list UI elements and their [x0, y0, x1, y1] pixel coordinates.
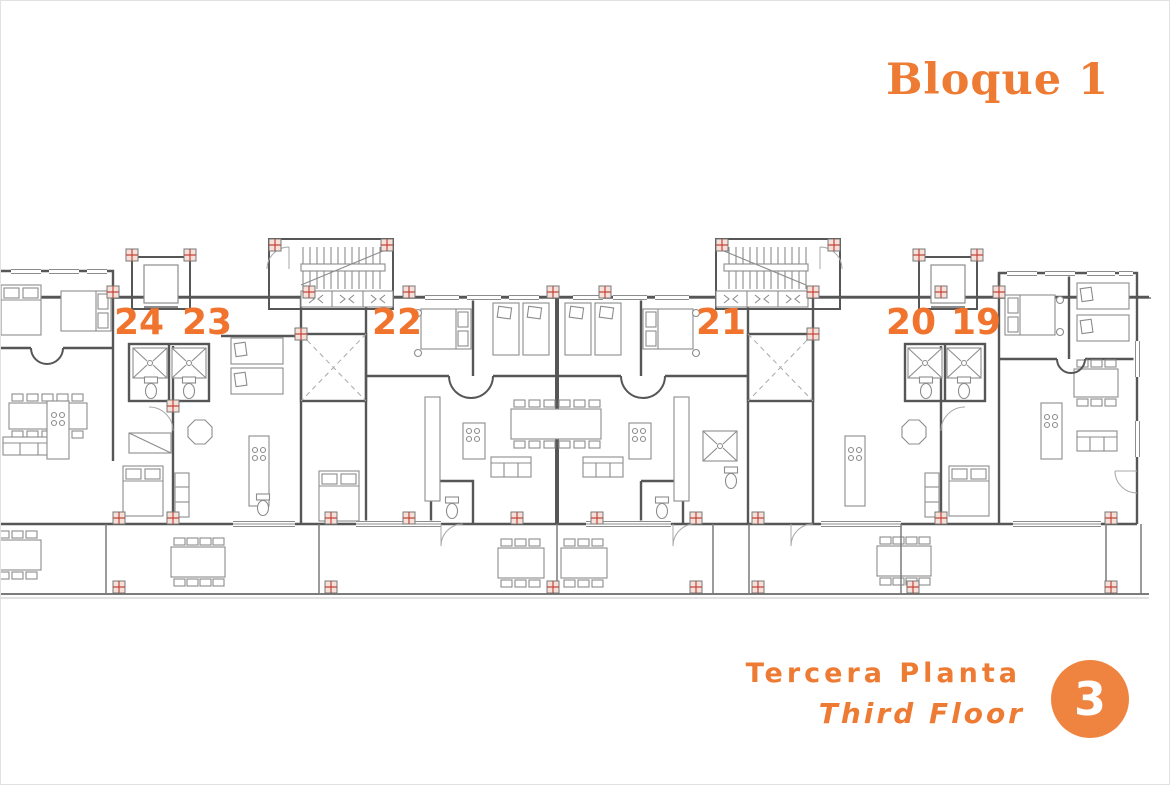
- stair-core-right: [716, 247, 808, 307]
- unit-number-22: 22: [372, 305, 422, 341]
- unit-number-19: 19: [951, 305, 1001, 341]
- unit-number-23: 23: [182, 305, 232, 341]
- floor-title-spanish: Tercera Planta: [746, 658, 1021, 689]
- floor-number-badge: 3: [1051, 660, 1129, 738]
- unit-number-24: 24: [114, 305, 164, 341]
- floor-number: 3: [1074, 672, 1106, 726]
- floor-title-english: Third Floor: [819, 697, 1025, 730]
- floorplan-page: { "header": { "block_title": "Bloque 1" …: [0, 0, 1170, 785]
- block-title: Bloque 1: [886, 55, 1109, 105]
- unit-number-20: 20: [886, 305, 936, 341]
- unit-number-21: 21: [696, 305, 746, 341]
- floor-plan-drawing: [1, 231, 1170, 631]
